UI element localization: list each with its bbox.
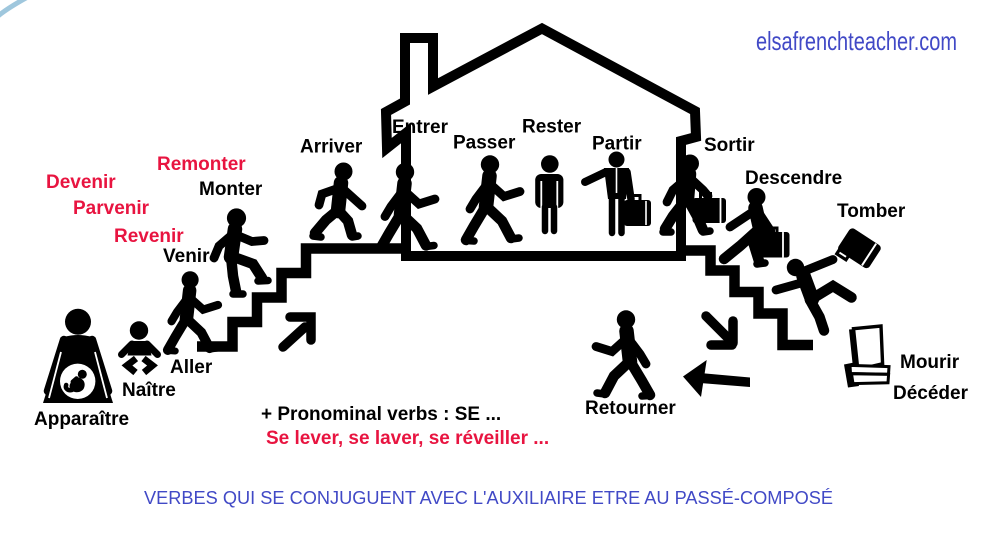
svg-text:Naître: Naître (122, 380, 176, 401)
svg-text:Mourir: Mourir (900, 352, 960, 373)
svg-text:Monter: Monter (199, 179, 263, 200)
svg-text:Descendre: Descendre (745, 168, 842, 189)
svg-text:Sortir: Sortir (704, 135, 755, 156)
svg-text:Rester: Rester (522, 117, 582, 138)
svg-text:Tomber: Tomber (837, 201, 906, 222)
svg-text:Arriver: Arriver (300, 137, 363, 158)
svg-text:Partir: Partir (592, 134, 642, 155)
svg-text:Apparaître: Apparaître (34, 409, 129, 430)
svg-text:Se lever, se laver, se réveill: Se lever, se laver, se réveiller ... (266, 428, 549, 449)
svg-text:Retourner: Retourner (585, 398, 676, 419)
svg-text:elsafrenchteacher.com: elsafrenchteacher.com (756, 26, 957, 56)
svg-text:Décéder: Décéder (893, 383, 969, 404)
svg-text:Remonter: Remonter (157, 154, 246, 175)
svg-text:Parvenir: Parvenir (73, 198, 150, 219)
svg-text:Venir: Venir (163, 246, 210, 267)
svg-text:Devenir: Devenir (46, 172, 116, 193)
svg-text:Revenir: Revenir (114, 226, 184, 247)
svg-text:Aller: Aller (170, 357, 213, 378)
svg-text:Passer: Passer (453, 133, 516, 154)
svg-text:Entrer: Entrer (392, 117, 449, 138)
svg-text:+ Pronominal verbs : SE ...: + Pronominal verbs : SE ... (261, 404, 501, 425)
svg-text:VERBES QUI SE CONJUGUENT AVEC: VERBES QUI SE CONJUGUENT AVEC L'AUXILIAI… (144, 488, 833, 508)
